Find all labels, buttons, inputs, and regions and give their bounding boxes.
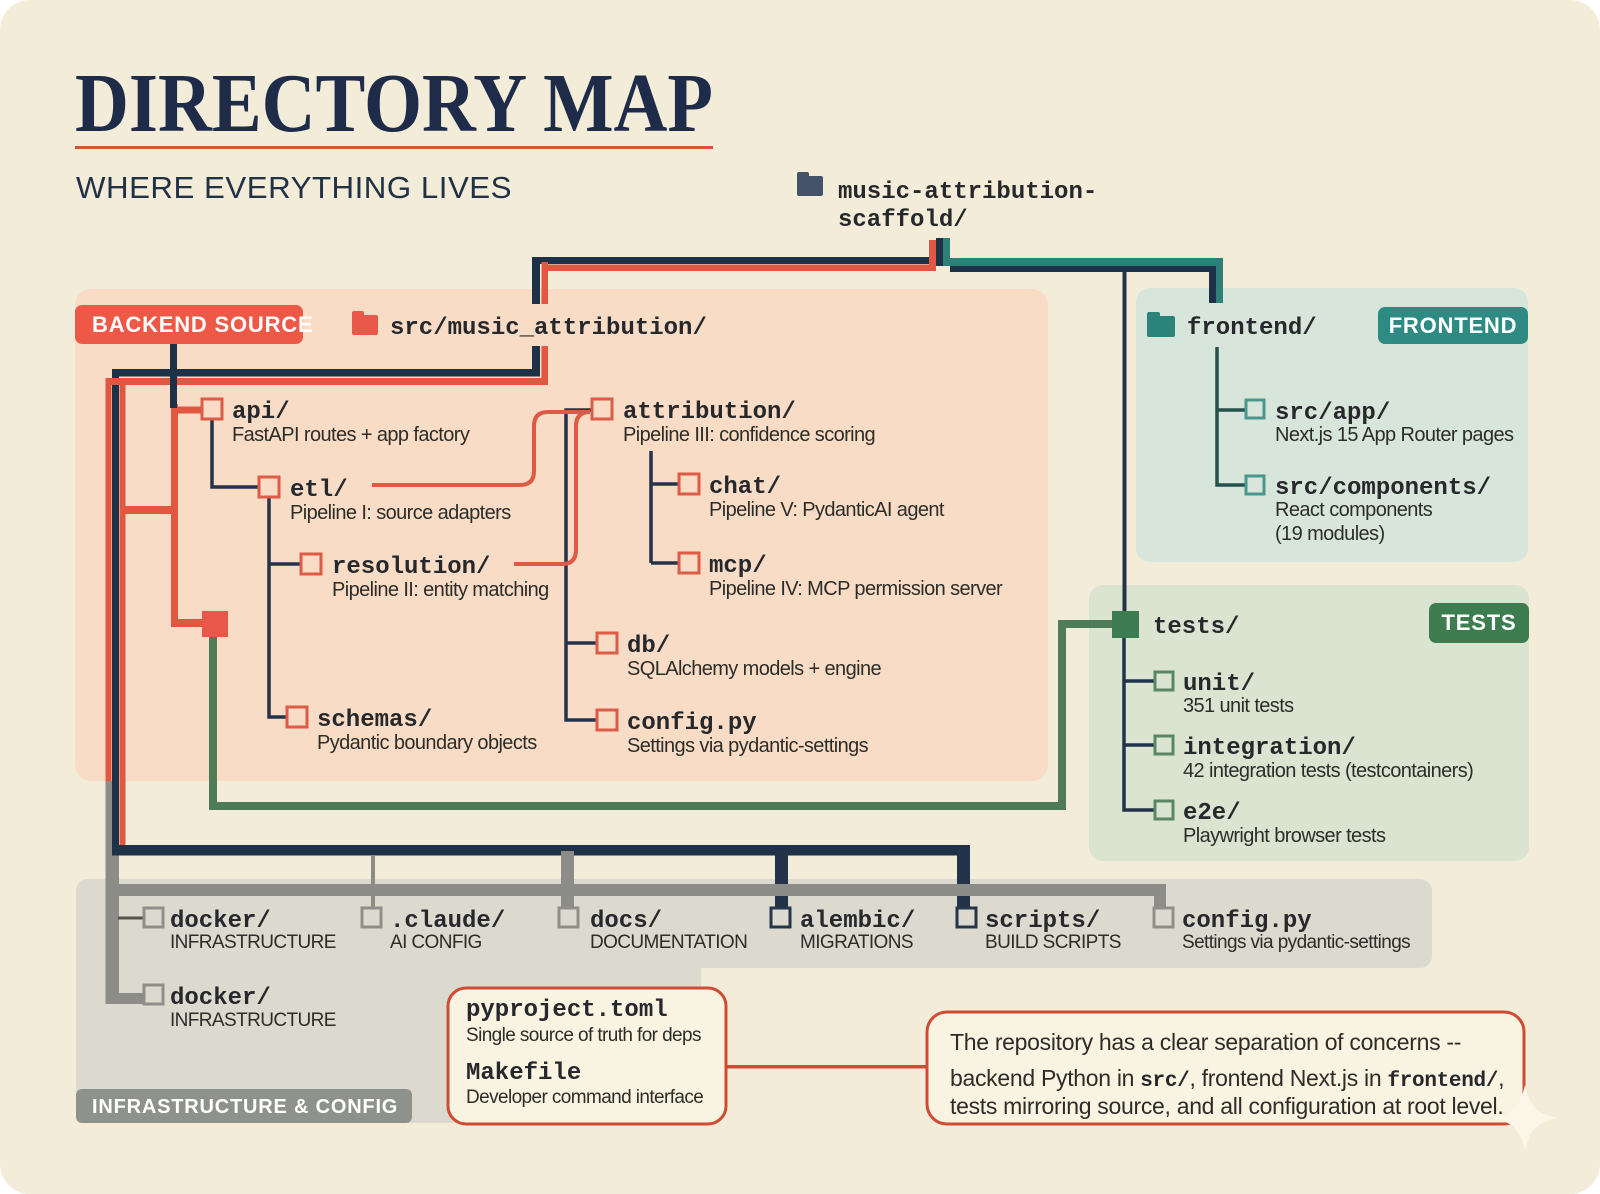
- svg-text:api/: api/: [232, 399, 290, 426]
- svg-text:src/music_attribution/: src/music_attribution/: [390, 315, 707, 342]
- svg-text:frontend/: frontend/: [1187, 315, 1317, 342]
- svg-text:scripts/: scripts/: [985, 908, 1100, 935]
- svg-text:resolution/: resolution/: [332, 554, 490, 581]
- svg-text:MIGRATIONS: MIGRATIONS: [800, 932, 913, 953]
- svg-text:tests mirroring source, and al: tests mirroring source, and all configur…: [950, 1093, 1503, 1119]
- svg-text:db/: db/: [627, 633, 670, 660]
- svg-text:The repository has a clear sep: The repository has a clear separation of…: [950, 1029, 1461, 1055]
- svg-text:SQLAlchemy models + engine: SQLAlchemy models + engine: [627, 658, 881, 680]
- svg-text:.claude/: .claude/: [390, 908, 505, 935]
- svg-text:351 unit tests: 351 unit tests: [1183, 695, 1294, 717]
- svg-text:e2e/: e2e/: [1183, 800, 1241, 827]
- svg-text:Playwright browser tests: Playwright browser tests: [1183, 825, 1386, 847]
- svg-text:scaffold/: scaffold/: [838, 207, 968, 234]
- svg-text:Pipeline IV: MCP permission se: Pipeline IV: MCP permission server: [709, 578, 1003, 600]
- svg-text:music-attribution-: music-attribution-: [838, 179, 1097, 206]
- svg-text:Settings via pydantic-settings: Settings via pydantic-settings: [1182, 932, 1410, 953]
- svg-text:tests/: tests/: [1153, 614, 1239, 641]
- svg-text:unit/: unit/: [1183, 671, 1255, 698]
- svg-text:Pydantic boundary objects: Pydantic boundary objects: [317, 732, 537, 754]
- svg-text:INFRASTRUCTURE & CONFIG: INFRASTRUCTURE & CONFIG: [92, 1096, 398, 1118]
- svg-text:integration/: integration/: [1183, 735, 1356, 762]
- svg-text:attribution/: attribution/: [623, 399, 796, 426]
- svg-text:React components: React components: [1275, 499, 1433, 521]
- svg-text:Pipeline III: confidence scori: Pipeline III: confidence scoring: [623, 424, 875, 446]
- svg-text:etl/: etl/: [290, 477, 348, 504]
- svg-text:schemas/: schemas/: [317, 707, 432, 734]
- svg-text:docker/: docker/: [170, 908, 271, 935]
- svg-text:docker/: docker/: [170, 985, 271, 1012]
- svg-text:docs/: docs/: [590, 908, 662, 935]
- svg-text:Single source of truth for dep: Single source of truth for deps: [466, 1025, 701, 1046]
- svg-text:AI CONFIG: AI CONFIG: [390, 932, 482, 953]
- svg-text:Pipeline II: entity matching: Pipeline II: entity matching: [332, 579, 549, 601]
- svg-text:(19 modules): (19 modules): [1275, 523, 1385, 545]
- svg-text:Settings via pydantic-settings: Settings via pydantic-settings: [627, 735, 869, 757]
- svg-text:config.py: config.py: [627, 710, 757, 737]
- svg-text:Next.js 15 App Router pages: Next.js 15 App Router pages: [1275, 424, 1514, 446]
- svg-text:BACKEND SOURCE: BACKEND SOURCE: [92, 312, 313, 337]
- svg-text:Makefile: Makefile: [466, 1060, 581, 1087]
- svg-text:42 integration tests (testcont: 42 integration tests (testcontainers): [1183, 760, 1473, 782]
- svg-text:INFRASTRUCTURE: INFRASTRUCTURE: [170, 932, 336, 953]
- svg-text:backend Python in src/, fronte: backend Python in src/, frontend Next.js…: [950, 1065, 1504, 1093]
- svg-text:INFRASTRUCTURE: INFRASTRUCTURE: [170, 1010, 336, 1031]
- svg-text:WHERE EVERYTHING LIVES: WHERE EVERYTHING LIVES: [76, 170, 512, 205]
- svg-text:FRONTEND: FRONTEND: [1389, 313, 1518, 338]
- svg-text:BUILD SCRIPTS: BUILD SCRIPTS: [985, 932, 1121, 953]
- svg-text:chat/: chat/: [709, 474, 781, 501]
- svg-text:Pipeline V: PydanticAI agent: Pipeline V: PydanticAI agent: [709, 499, 945, 521]
- svg-text:FastAPI routes + app factory: FastAPI routes + app factory: [232, 424, 470, 446]
- svg-text:DIRECTORY MAP: DIRECTORY MAP: [75, 57, 713, 150]
- svg-text:DOCUMENTATION: DOCUMENTATION: [590, 932, 747, 953]
- svg-text:Pipeline I: source adapters: Pipeline I: source adapters: [290, 502, 511, 524]
- svg-text:Developer command interface: Developer command interface: [466, 1087, 703, 1108]
- svg-text:mcp/: mcp/: [709, 553, 767, 580]
- svg-text:config.py: config.py: [1182, 908, 1312, 935]
- svg-text:src/app/: src/app/: [1275, 400, 1390, 427]
- svg-text:pyproject.toml: pyproject.toml: [466, 997, 668, 1024]
- svg-text:TESTS: TESTS: [1442, 610, 1517, 635]
- svg-text:alembic/: alembic/: [800, 908, 915, 935]
- svg-text:src/components/: src/components/: [1275, 475, 1491, 502]
